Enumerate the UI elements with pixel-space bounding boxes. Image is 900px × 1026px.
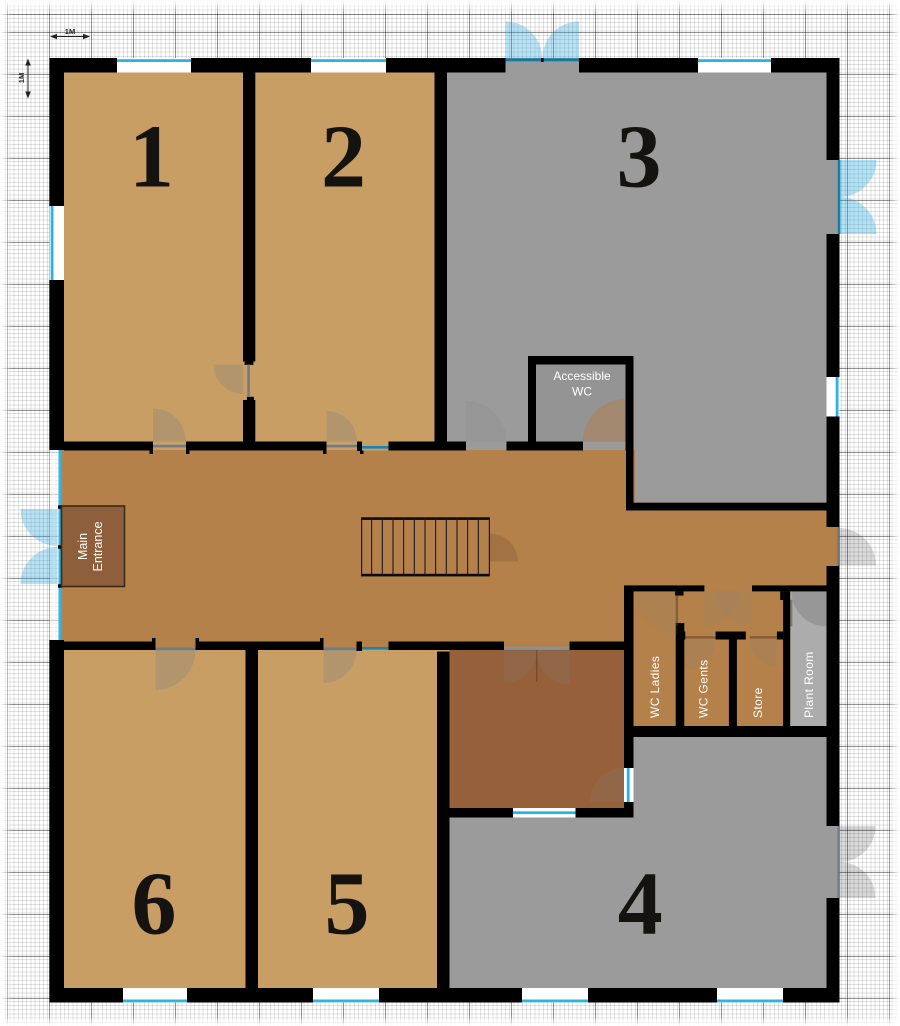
svg-text:1M: 1M xyxy=(17,73,26,83)
svg-text:WC Gents: WC Gents xyxy=(697,659,711,718)
svg-text:WC: WC xyxy=(572,385,592,399)
svg-text:4: 4 xyxy=(618,855,663,954)
svg-text:1: 1 xyxy=(129,108,174,207)
svg-text:6: 6 xyxy=(132,855,177,954)
svg-text:WC Ladies: WC Ladies xyxy=(648,656,662,718)
svg-text:5: 5 xyxy=(325,855,370,954)
svg-text:Store: Store xyxy=(751,687,765,718)
svg-text:Accessible: Accessible xyxy=(553,369,611,383)
svg-text:1M: 1M xyxy=(65,27,75,36)
svg-text:3: 3 xyxy=(617,108,662,207)
svg-text:Plant Room: Plant Room xyxy=(802,651,816,718)
svg-text:2: 2 xyxy=(321,108,366,207)
